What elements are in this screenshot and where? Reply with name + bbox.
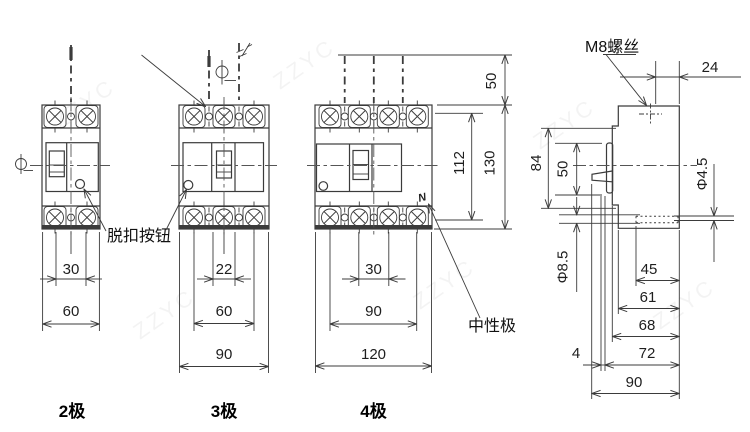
- mounting-hole-icon: [341, 107, 348, 127]
- terminal-screw-icon: [44, 202, 66, 234]
- terminal-screw-icon: [348, 202, 370, 234]
- side-view: M8螺丝 24 84 50 Φ8.5: [528, 38, 741, 399]
- toggle-handle-side: [592, 171, 612, 182]
- centerline-mark-icon: [16, 154, 34, 174]
- dim-wire-strip: 50: [483, 73, 500, 90]
- dim-2p-pole-spacing: 30: [63, 261, 80, 278]
- terminal-screw-icon: [406, 101, 428, 133]
- trip-button-label: 脱扣按钮: [107, 227, 171, 245]
- terminal-screw-icon: [183, 101, 205, 133]
- trip-button: [184, 181, 193, 190]
- watermark-text: ZZYC: [129, 284, 200, 344]
- toggle-handle: [49, 151, 64, 177]
- handle-window: [46, 143, 98, 192]
- terminal-screw-icon: [406, 202, 428, 234]
- dim-terminal-span: 112: [451, 151, 468, 175]
- mounting-hole-icon: [341, 208, 348, 228]
- breaker-dimension-drawing: ZZYC ZZYC ZZYC ZZYC ZZYC ZZYC: [0, 0, 750, 432]
- watermark-text: ZZYC: [409, 254, 480, 314]
- dim-body-height: 84: [528, 155, 545, 172]
- mounting-hole-icon: [236, 208, 243, 228]
- terminal-screw-icon: [377, 101, 399, 133]
- dim-depth-61: 61: [640, 289, 657, 306]
- watermark-text: ZZYC: [649, 274, 720, 334]
- dim-offset-4: 4: [572, 345, 580, 362]
- dim-depth-90: 90: [626, 374, 643, 391]
- watermark-layer: ZZYC ZZYC ZZYC ZZYC ZZYC ZZYC: [49, 34, 720, 344]
- m8-screw-label: M8螺丝: [585, 38, 639, 56]
- neutral-pole-label: 中性极: [468, 317, 516, 335]
- toggle-handle: [353, 151, 369, 180]
- dim-back-hole: Φ8.5: [555, 251, 572, 284]
- trip-button: [76, 180, 85, 189]
- watermark-text: ZZYC: [49, 74, 120, 134]
- dim-handle-height: 50: [555, 161, 572, 178]
- dim-depth-45: 45: [641, 261, 658, 278]
- front-view-4pole: N 30 90 120 4极: [307, 56, 480, 421]
- dim-overall-height: 130: [482, 150, 499, 175]
- terminal-screw-icon: [319, 101, 341, 133]
- dim-3p-pole-span: 60: [216, 303, 233, 320]
- terminal-screw-icon: [76, 202, 98, 234]
- mounting-hole-icon: [206, 107, 213, 127]
- dim-4p-width: 120: [361, 346, 386, 363]
- drawing-canvas: ZZYC ZZYC ZZYC ZZYC ZZYC ZZYC: [0, 0, 750, 432]
- watermark-text: ZZYC: [529, 94, 600, 154]
- terminal-screw-icon: [243, 101, 265, 133]
- mounting-hole-icon: [236, 107, 243, 127]
- mounting-hole-icon: [399, 107, 406, 127]
- dim-depth-68: 68: [639, 317, 656, 334]
- side-body-outline: [612, 106, 679, 228]
- terminal-screw-icon: [348, 101, 370, 133]
- handle-window: [183, 143, 264, 192]
- mounting-hole-leader: [142, 55, 206, 107]
- dim-4p-pole-spacing: 30: [365, 261, 382, 278]
- hidden-hole: [636, 216, 678, 222]
- terminal-screw-icon: [319, 202, 341, 234]
- watermark-text: ZZYC: [269, 34, 340, 94]
- mounting-hole-icon: [399, 208, 406, 228]
- caption-3pole: 3极: [211, 402, 237, 421]
- centerline-mark-icon: [216, 60, 236, 85]
- mounting-hole-icon: [206, 208, 213, 228]
- caption-2pole: 2极: [59, 402, 85, 421]
- m8-screw-leader: [606, 55, 647, 106]
- dim-2p-width: 60: [63, 303, 80, 320]
- terminal-screw-icon: [243, 202, 265, 234]
- neutral-pole-mark: N: [417, 191, 429, 205]
- dim-top-depth: 24: [702, 59, 719, 76]
- dim-front-hole: Φ4.5: [694, 158, 711, 191]
- dim-3p-width: 90: [216, 346, 233, 363]
- handle-window: [317, 144, 402, 192]
- trip-button: [319, 182, 328, 191]
- terminal-screw-icon: [183, 202, 205, 234]
- terminal-screw-icon: [377, 202, 399, 234]
- dim-3p-center-width: 22: [216, 261, 233, 278]
- dim-depth-72: 72: [639, 345, 656, 362]
- dim-4p-pole-span: 90: [365, 303, 382, 320]
- trip-button-leader: [84, 189, 106, 231]
- caption-4pole: 4极: [360, 402, 386, 421]
